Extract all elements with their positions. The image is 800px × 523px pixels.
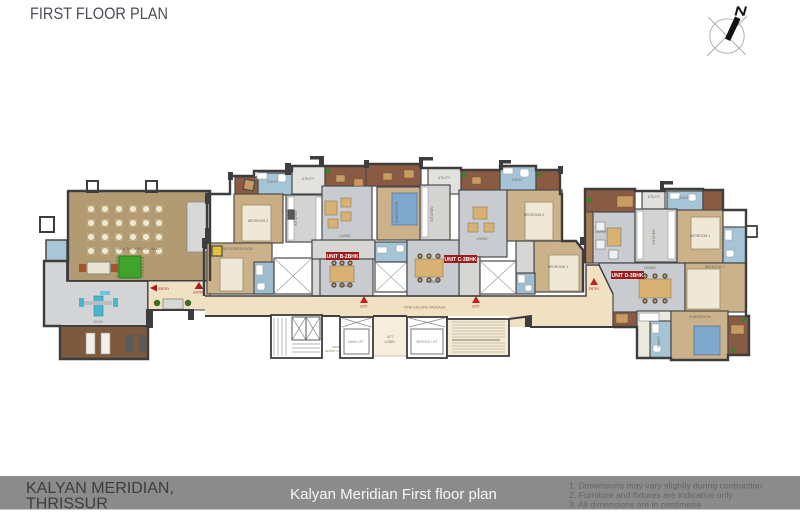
svg-text:BEDROOM 2: BEDROOM 2 <box>524 213 544 217</box>
svg-text:MASTERBEDROOM: MASTERBEDROOM <box>221 247 253 251</box>
svg-text:MAIN LIFT: MAIN LIFT <box>348 340 363 344</box>
svg-text:DINING: DINING <box>644 266 656 270</box>
svg-text:EXIT: EXIT <box>360 305 367 309</box>
svg-text:UTILITY: UTILITY <box>648 195 661 199</box>
svg-text:TOILET: TOILET <box>657 336 661 348</box>
svg-text:MULTIPURPOSE HALL: MULTIPURPOSE HALL <box>118 246 161 251</box>
svg-text:THRISSUR: THRISSUR <box>26 496 108 513</box>
svg-text:LIVING: LIVING <box>476 237 487 241</box>
svg-text:Kalyan Meridian First floor pl: Kalyan Meridian First floor plan <box>290 486 497 503</box>
svg-text:UTILITY: UTILITY <box>302 177 315 181</box>
svg-text:2. Furniture and fixtures are: 2. Furniture and fixtures are indicative… <box>569 490 733 500</box>
svg-text:SERVICE LIFT: SERVICE LIFT <box>416 340 437 344</box>
svg-text:DINING: DINING <box>426 280 438 284</box>
svg-text:BEDROOM 2: BEDROOM 2 <box>248 219 268 223</box>
svg-text:BALCONY: BALCONY <box>602 195 619 199</box>
svg-text:UNIT B-2BHK: UNIT B-2BHK <box>327 254 359 260</box>
svg-text:BEDROOM 2: BEDROOM 2 <box>705 265 725 269</box>
svg-text:KITCHEN: KITCHEN <box>430 206 434 221</box>
svg-text:KITCHEN: KITCHEN <box>652 229 656 244</box>
svg-text:BEDROOM 1: BEDROOM 1 <box>548 265 568 269</box>
svg-text:UTILITY: UTILITY <box>438 176 451 180</box>
svg-text:GYM: GYM <box>93 319 102 324</box>
svg-text:3. All dimensions are in centi: 3. All dimensions are in centimetre <box>569 500 701 510</box>
svg-text:1. Dimensions may vary slightl: 1. Dimensions may vary slightly during c… <box>569 481 762 491</box>
svg-text:ENTRY: ENTRY <box>159 287 171 291</box>
svg-text:TOILET: TOILET <box>678 196 690 200</box>
svg-text:TOILET: TOILET <box>511 178 523 182</box>
svg-text:BEDROOM 1: BEDROOM 1 <box>690 234 710 238</box>
svg-text:M.BEDROOM: M.BEDROOM <box>689 315 710 319</box>
svg-text:DINING: DINING <box>339 284 351 288</box>
svg-text:FIRE ESCAPE PASSAGE: FIRE ESCAPE PASSAGE <box>404 306 446 310</box>
svg-text:KALYAN MERIDIAN,: KALYAN MERIDIAN, <box>26 480 174 497</box>
svg-text:UNIT C-3BHK: UNIT C-3BHK <box>445 257 477 263</box>
svg-text:KITCHEN: KITCHEN <box>294 210 298 225</box>
svg-text:FIRST FLOOR PLAN: FIRST FLOOR PLAN <box>30 4 168 23</box>
svg-text:LOBBY: LOBBY <box>385 340 397 344</box>
svg-text:EXIT: EXIT <box>472 305 479 309</box>
svg-text:UNIT D-3BHK: UNIT D-3BHK <box>612 273 644 279</box>
svg-text:LIFT: LIFT <box>387 335 394 339</box>
svg-text:ENTRY: ENTRY <box>589 287 601 291</box>
svg-text:LIVING: LIVING <box>339 234 350 238</box>
svg-text:LIVING: LIVING <box>595 230 606 234</box>
svg-text:M.BEDROOM: M.BEDROOM <box>395 201 399 222</box>
svg-text:TOILET: TOILET <box>266 180 278 184</box>
